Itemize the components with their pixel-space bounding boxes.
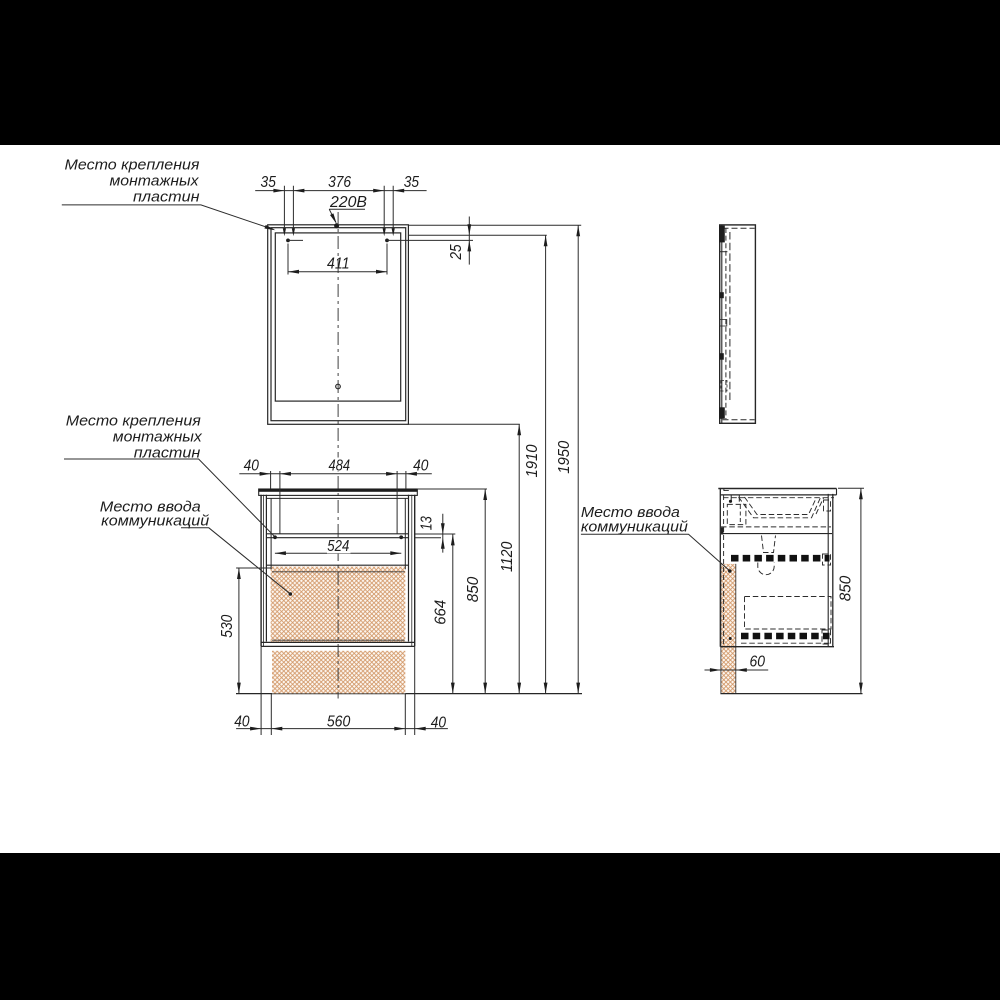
svg-text:Место крепления: Место крепления <box>65 156 200 173</box>
svg-text:монтажных: монтажных <box>113 429 203 446</box>
svg-text:484: 484 <box>329 458 351 475</box>
svg-text:1910: 1910 <box>524 444 541 477</box>
svg-text:1120: 1120 <box>499 541 516 572</box>
svg-text:40: 40 <box>413 457 428 474</box>
svg-text:коммуникаций: коммуникаций <box>101 513 210 530</box>
svg-text:530: 530 <box>219 615 236 638</box>
svg-text:40: 40 <box>244 457 259 474</box>
svg-text:13: 13 <box>419 516 436 530</box>
svg-text:25: 25 <box>448 244 465 260</box>
svg-text:850: 850 <box>838 576 855 602</box>
svg-text:монтажных: монтажных <box>110 173 200 190</box>
svg-text:35: 35 <box>261 174 276 191</box>
svg-text:коммуникаций: коммуникаций <box>581 518 689 535</box>
svg-text:664: 664 <box>433 600 450 625</box>
svg-text:40: 40 <box>431 715 446 732</box>
svg-text:пластин: пластин <box>133 189 200 206</box>
svg-text:35: 35 <box>404 174 419 191</box>
svg-text:Место крепления: Место крепления <box>66 412 201 429</box>
svg-text:560: 560 <box>327 713 351 730</box>
svg-text:220В: 220В <box>329 194 367 211</box>
svg-text:524: 524 <box>327 538 349 555</box>
svg-text:1950: 1950 <box>556 441 573 474</box>
svg-text:40: 40 <box>234 713 249 730</box>
svg-text:60: 60 <box>749 654 765 671</box>
svg-text:850: 850 <box>465 577 482 603</box>
svg-text:376: 376 <box>328 174 351 191</box>
